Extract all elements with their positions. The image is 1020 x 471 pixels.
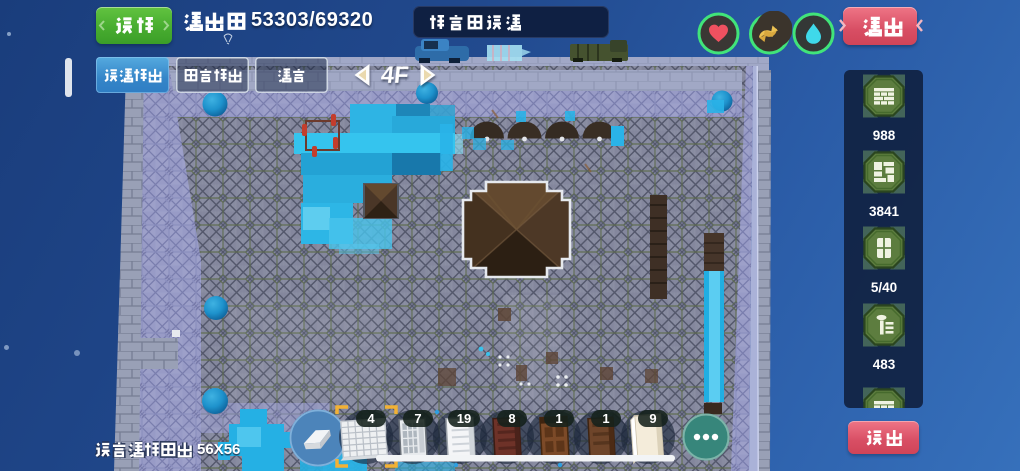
- svg-text:9: 9: [649, 411, 656, 426]
- svg-text:1: 1: [602, 411, 609, 426]
- svg-text:1: 1: [555, 411, 562, 426]
- svg-text:988: 988: [873, 128, 896, 143]
- svg-text:5/40: 5/40: [871, 280, 897, 295]
- svg-text:8: 8: [508, 411, 515, 426]
- svg-text:19: 19: [457, 411, 471, 426]
- svg-text:7: 7: [414, 411, 421, 426]
- svg-text:4: 4: [367, 411, 375, 426]
- svg-text:3841: 3841: [869, 204, 900, 219]
- svg-text:483: 483: [873, 357, 896, 372]
- svg-text:4F: 4F: [380, 62, 410, 88]
